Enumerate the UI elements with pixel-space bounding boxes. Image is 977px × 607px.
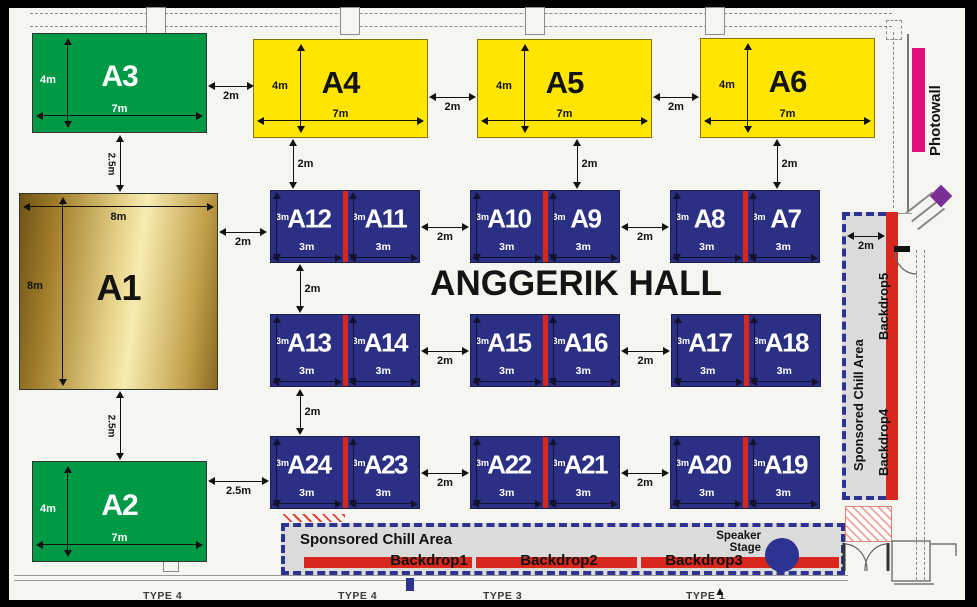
dimension-arrow bbox=[750, 253, 818, 262]
gap-label: 2m bbox=[223, 90, 239, 102]
booth-label: A11 bbox=[365, 204, 407, 235]
gap-label: 2m bbox=[858, 240, 874, 252]
gap-arrow-col2_top: 2m bbox=[573, 140, 582, 188]
wall-pillar bbox=[705, 7, 725, 35]
dimension-arrow bbox=[672, 193, 681, 260]
dimension-arrow bbox=[273, 499, 341, 508]
booth-label: A1 bbox=[96, 267, 140, 309]
gap-label: 2m bbox=[437, 477, 453, 489]
booth-label: A24 bbox=[287, 450, 330, 481]
dimension-arrow bbox=[749, 193, 758, 260]
dimension-arrow bbox=[273, 377, 341, 386]
booth-a19[interactable]: 3mA193m bbox=[748, 437, 820, 508]
gap-arrow-r1_gap1: 2m bbox=[422, 223, 468, 232]
booth-label: A10 bbox=[487, 204, 530, 235]
wall-pillar bbox=[340, 7, 360, 35]
dimension-arrow bbox=[749, 439, 758, 506]
wall-pillar bbox=[146, 7, 166, 35]
booth-label: A14 bbox=[364, 328, 407, 359]
dimension-arrow bbox=[472, 317, 481, 384]
booth-a8[interactable]: 3mA83m bbox=[671, 191, 743, 262]
dimension-arrow bbox=[673, 499, 741, 508]
booth-width-dim: 3m bbox=[376, 365, 391, 377]
booth-width-dim: 3m bbox=[499, 241, 514, 253]
dimension-arrow bbox=[58, 198, 67, 385]
gap-arrow-a3_a4: 2m bbox=[209, 82, 253, 91]
dimension-arrow bbox=[673, 317, 682, 384]
gap-arrow-a5_a6: 2m bbox=[654, 93, 698, 102]
dimension-arrow bbox=[549, 317, 558, 384]
booth-width-dim: 3m bbox=[699, 487, 714, 499]
booth-label: A3 bbox=[101, 60, 137, 94]
booth-width-dim: 3m bbox=[299, 241, 314, 253]
gap-label: 2m bbox=[305, 406, 321, 418]
gap-arrow-a1_a2: 2.5m bbox=[116, 392, 125, 459]
hatched-strip bbox=[283, 514, 345, 522]
dimension-arrow bbox=[37, 111, 202, 120]
booth-label: A19 bbox=[764, 450, 807, 481]
booth-a10[interactable]: 3mA103m bbox=[471, 191, 543, 262]
dimension-arrow bbox=[37, 540, 202, 549]
dimension-arrow bbox=[550, 253, 618, 262]
gap-arrow-r1_gap2: 2m bbox=[622, 223, 668, 232]
booth-width-dim: 8m bbox=[111, 211, 127, 223]
booth-label: A5 bbox=[546, 65, 584, 101]
gap-label: 2m bbox=[782, 158, 798, 170]
gap-label: 2m bbox=[637, 477, 653, 489]
booth-pair-a8-a7: 3mA83m3mA73m bbox=[670, 190, 820, 263]
booth-a18[interactable]: 3mA183m bbox=[749, 315, 821, 386]
gap-arrow-r2_gap1: 2m bbox=[422, 347, 468, 356]
booth-pair-a22-a21: 3mA223m3mA213m bbox=[470, 436, 620, 509]
booth-pair-a20-a19: 3mA203m3mA193m bbox=[670, 436, 820, 509]
hall-title: ANGGERIK HALL bbox=[428, 264, 724, 304]
ramp-base-line bbox=[898, 213, 912, 214]
booth-a2[interactable]: A2 4m 7m bbox=[32, 461, 207, 562]
dimension-arrow bbox=[272, 439, 281, 506]
booth-height-dim: 4m bbox=[496, 80, 512, 92]
floor-plan: A3 4m 7m A4 4m 7m A5 4m 7m A6 4m 7m A1 8… bbox=[0, 0, 977, 607]
wall-pillar bbox=[525, 7, 545, 35]
booth-width-dim: 3m bbox=[499, 487, 514, 499]
booth-pair-a17-a18: 3mA173m3mA183m bbox=[671, 314, 821, 387]
backdrop1-label: Backdrop1 bbox=[390, 552, 468, 569]
booth-a12[interactable]: 3mA123m bbox=[271, 191, 343, 262]
dimension-arrow bbox=[473, 499, 541, 508]
booth-width-dim: 3m bbox=[700, 365, 715, 377]
booth-width-dim: 3m bbox=[376, 487, 391, 499]
booth-label: A4 bbox=[322, 65, 360, 101]
booth-width-dim: 3m bbox=[699, 241, 714, 253]
up-arrow-icon: ▲ bbox=[714, 584, 726, 598]
dimension-arrow bbox=[473, 377, 541, 386]
gap-arrow-chill_right_gap: 2m bbox=[848, 232, 884, 241]
gap-label: 2m bbox=[637, 231, 653, 243]
dimension-arrow bbox=[750, 499, 818, 508]
booth-label: A9 bbox=[570, 204, 600, 235]
booth-label: A18 bbox=[765, 328, 808, 359]
gap-arrow-rows_23: 2m bbox=[296, 390, 305, 434]
booth-pair-a12-a11: 3mA123m3mA113m bbox=[270, 190, 420, 263]
gap-arrow-col3_top: 2m bbox=[773, 140, 782, 188]
wall-right-dash bbox=[916, 250, 917, 580]
booth-label: A16 bbox=[564, 328, 607, 359]
gap-arrow-col1_top: 2m bbox=[289, 140, 298, 188]
booth-label: A12 bbox=[287, 204, 330, 235]
dimension-arrow bbox=[472, 439, 481, 506]
gap-label: 2.5m bbox=[106, 414, 117, 437]
booth-label: A23 bbox=[364, 450, 407, 481]
gap-label: 2m bbox=[437, 231, 453, 243]
wall-right-line bbox=[907, 34, 909, 212]
booth-width-dim: 3m bbox=[776, 487, 791, 499]
booth-label: A15 bbox=[487, 328, 530, 359]
booth-height-dim: 4m bbox=[40, 503, 56, 515]
booth-pair-a10-a9: 3mA103m3mA93m bbox=[470, 190, 620, 263]
chill-area-label: Sponsored Chill Area bbox=[851, 311, 866, 471]
sponsored-chill-area-bottom[interactable]: Sponsored Chill Area Backdrop1 Backdrop2… bbox=[281, 523, 845, 575]
double-door-icon bbox=[838, 538, 970, 588]
photowall[interactable] bbox=[912, 48, 925, 152]
booth-width-dim: 3m bbox=[776, 241, 791, 253]
booth-label: A21 bbox=[564, 450, 607, 481]
booth-a14[interactable]: 3mA143m bbox=[348, 315, 420, 386]
booth-a22[interactable]: 3mA223m bbox=[471, 437, 543, 508]
photowall-label: Photowall bbox=[927, 46, 944, 156]
booth-label: A22 bbox=[487, 450, 530, 481]
booth-width-dim: 3m bbox=[576, 365, 591, 377]
booth-pair-a24-a23: 3mA243m3mA233m bbox=[270, 436, 420, 509]
chill-area-label: Sponsored Chill Area bbox=[300, 531, 452, 548]
gap-label: 2m bbox=[445, 101, 461, 113]
booth-a16[interactable]: 3mA163m bbox=[548, 315, 620, 386]
gap-arrow-a2_a24: 2.5m bbox=[209, 477, 268, 486]
gap-label: 2m bbox=[305, 283, 321, 295]
booth-a1[interactable]: A1 8m 8m bbox=[19, 193, 218, 390]
dimension-arrow bbox=[549, 439, 558, 506]
gap-label: 2.5m bbox=[106, 152, 117, 175]
booth-a17[interactable]: 3mA173m bbox=[672, 315, 744, 386]
frame-bottom bbox=[0, 600, 977, 607]
dimension-arrow bbox=[750, 317, 759, 384]
booth-a3[interactable]: A3 4m 7m bbox=[32, 33, 207, 133]
dimension-arrow bbox=[705, 116, 870, 125]
gap-arrow-a1_a12: 2m bbox=[220, 228, 266, 237]
booth-a5[interactable]: A5 4m 7m bbox=[477, 39, 652, 138]
booth-a23[interactable]: 3mA233m bbox=[348, 437, 420, 508]
gap-arrow-rows_12: 2m bbox=[296, 265, 305, 312]
dimension-arrow bbox=[349, 439, 358, 506]
dimension-arrow bbox=[482, 116, 647, 125]
booth-pair-a13-a14: 3mA133m3mA143m bbox=[270, 314, 420, 387]
dimension-arrow bbox=[24, 202, 213, 211]
gap-arrow-a3_a1: 2.5m bbox=[116, 136, 125, 191]
booth-a21[interactable]: 3mA213m bbox=[548, 437, 620, 508]
gap-label: 2m bbox=[437, 355, 453, 367]
booth-pair-a15-a16: 3mA153m3mA163m bbox=[470, 314, 620, 387]
speaker-stage[interactable] bbox=[765, 538, 799, 572]
dimension-arrow bbox=[258, 116, 423, 125]
hatched-corner-area bbox=[845, 506, 892, 542]
dimension-arrow bbox=[272, 193, 281, 260]
dimension-arrow bbox=[350, 377, 418, 386]
booth-height-dim: 8m bbox=[27, 280, 43, 292]
booth-label: A20 bbox=[687, 450, 730, 481]
booth-width-dim: 3m bbox=[576, 487, 591, 499]
gap-arrow-r3_gap1: 2m bbox=[422, 469, 468, 478]
dimension-arrow bbox=[273, 253, 341, 262]
wall-bottom-line bbox=[14, 580, 848, 581]
booth-width-dim: 3m bbox=[576, 241, 591, 253]
dimension-arrow bbox=[549, 193, 558, 260]
booth-label: A17 bbox=[688, 328, 731, 359]
dimension-arrow bbox=[550, 499, 618, 508]
dimension-arrow bbox=[349, 193, 358, 260]
booth-label: A8 bbox=[694, 204, 724, 235]
gap-label: 2m bbox=[298, 158, 314, 170]
dimension-arrow bbox=[550, 377, 618, 386]
wall-bottom-line bbox=[14, 575, 848, 576]
gap-arrow-r3_gap2: 2m bbox=[622, 469, 668, 478]
dimension-arrow bbox=[473, 253, 541, 262]
dimension-arrow bbox=[751, 377, 819, 386]
booth-width-dim: 3m bbox=[299, 487, 314, 499]
booth-a7[interactable]: 3mA73m bbox=[748, 191, 820, 262]
booth-a24[interactable]: 3mA243m bbox=[271, 437, 343, 508]
dimension-arrow bbox=[350, 253, 418, 262]
booth-label: A13 bbox=[287, 328, 330, 359]
booth-height-dim: 4m bbox=[272, 80, 288, 92]
wall-right-dash bbox=[893, 32, 894, 208]
booth-a15[interactable]: 3mA153m bbox=[471, 315, 543, 386]
booth-width-dim: 3m bbox=[499, 365, 514, 377]
speaker-stage-label: Speaker Stage bbox=[697, 530, 761, 555]
booth-label: A6 bbox=[769, 64, 807, 100]
backdrop4-label: Backdrop4 bbox=[876, 386, 891, 476]
booth-width-dim: 3m bbox=[777, 365, 792, 377]
gap-arrow-r2_gap2: 2m bbox=[622, 347, 669, 356]
dimension-arrow bbox=[672, 439, 681, 506]
backdrop5-label: Backdrop5 bbox=[876, 250, 891, 340]
booth-a11[interactable]: 3mA113m bbox=[348, 191, 420, 262]
wall-right-dash bbox=[924, 250, 925, 580]
gap-arrow-a4_a5: 2m bbox=[430, 93, 475, 102]
wall-corner-box bbox=[886, 20, 902, 40]
booth-label: A2 bbox=[101, 489, 137, 523]
gap-label: 2.5m bbox=[226, 485, 251, 497]
dimension-arrow bbox=[472, 193, 481, 260]
wall-tick bbox=[406, 578, 414, 591]
gap-label: 2m bbox=[235, 236, 251, 248]
dimension-arrow bbox=[673, 253, 741, 262]
booth-height-dim: 4m bbox=[719, 79, 735, 91]
booth-a13[interactable]: 3mA133m bbox=[271, 315, 343, 386]
booth-width-dim: 3m bbox=[299, 365, 314, 377]
booth-a20[interactable]: 3mA203m bbox=[671, 437, 743, 508]
booth-height-dim: 4m bbox=[40, 74, 56, 86]
dimension-arrow bbox=[272, 317, 281, 384]
backdrop2-label: Backdrop2 bbox=[520, 552, 598, 569]
booth-label: A7 bbox=[770, 204, 800, 235]
booth-width-dim: 3m bbox=[376, 241, 391, 253]
dimension-arrow bbox=[349, 317, 358, 384]
booth-a9[interactable]: 3mA93m bbox=[548, 191, 620, 262]
dimension-arrow bbox=[674, 377, 742, 386]
booth-a4[interactable]: A4 4m 7m bbox=[253, 39, 428, 138]
gap-label: 2m bbox=[668, 101, 684, 113]
gap-label: 2m bbox=[638, 355, 654, 367]
booth-a6[interactable]: A6 4m 7m bbox=[700, 38, 875, 138]
door-swing-icon bbox=[890, 242, 932, 284]
gap-label: 2m bbox=[582, 158, 598, 170]
dimension-arrow bbox=[350, 499, 418, 508]
